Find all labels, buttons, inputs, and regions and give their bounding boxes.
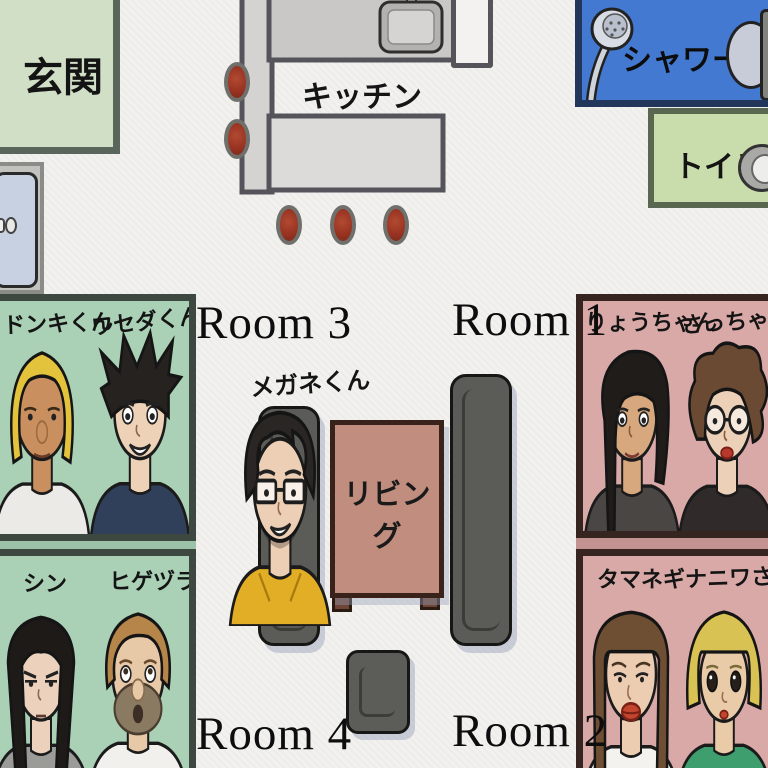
living-label: リビング xyxy=(335,471,439,555)
sofa-right xyxy=(450,374,512,646)
shower-area: シャワー xyxy=(575,0,768,107)
floorplan-stage: 玄関 キッチン シャワー トイレ xyxy=(0,0,768,768)
door-knob xyxy=(5,217,17,234)
room4[interactable]: シン ヒゲヅラ xyxy=(0,549,196,768)
room1-label: Room 1 xyxy=(452,293,608,347)
living-table: リビング xyxy=(330,420,444,598)
kitchen-cabinet xyxy=(451,0,493,68)
portrait-megane[interactable] xyxy=(228,394,332,626)
member-name: シン xyxy=(23,566,67,598)
portrait-higezura[interactable] xyxy=(87,594,189,768)
portrait-shin[interactable] xyxy=(0,596,91,768)
genkan-label: 玄関 xyxy=(23,45,103,103)
ottoman xyxy=(346,650,410,734)
room3[interactable]: ドンキくん ワセダくん xyxy=(0,294,196,541)
portrait-donki[interactable] xyxy=(0,331,91,536)
toilet-area: トイレ xyxy=(648,108,768,208)
member-name: ナニワさん xyxy=(684,558,768,594)
stool xyxy=(276,205,302,245)
stool xyxy=(330,205,356,245)
room2-label: Room 2 xyxy=(452,704,608,758)
entrance-door-icon xyxy=(0,162,44,294)
bathtub-icon xyxy=(760,9,768,101)
member-name: ヒゲヅラ xyxy=(109,564,196,596)
portrait-sacchan[interactable] xyxy=(677,331,768,538)
portrait-waseda[interactable] xyxy=(89,327,191,537)
portrait-naniwa[interactable] xyxy=(675,596,768,768)
stool xyxy=(224,62,250,102)
room4-label: Room 4 xyxy=(196,707,352,761)
kitchen-label: キッチン xyxy=(302,72,422,116)
shower-label: シャワー xyxy=(622,35,742,79)
stool xyxy=(383,205,409,245)
room3-label: Room 3 xyxy=(196,296,352,350)
portrait-ryo[interactable] xyxy=(583,333,681,538)
stool xyxy=(224,119,250,159)
genkan-area: 玄関 xyxy=(0,0,120,154)
